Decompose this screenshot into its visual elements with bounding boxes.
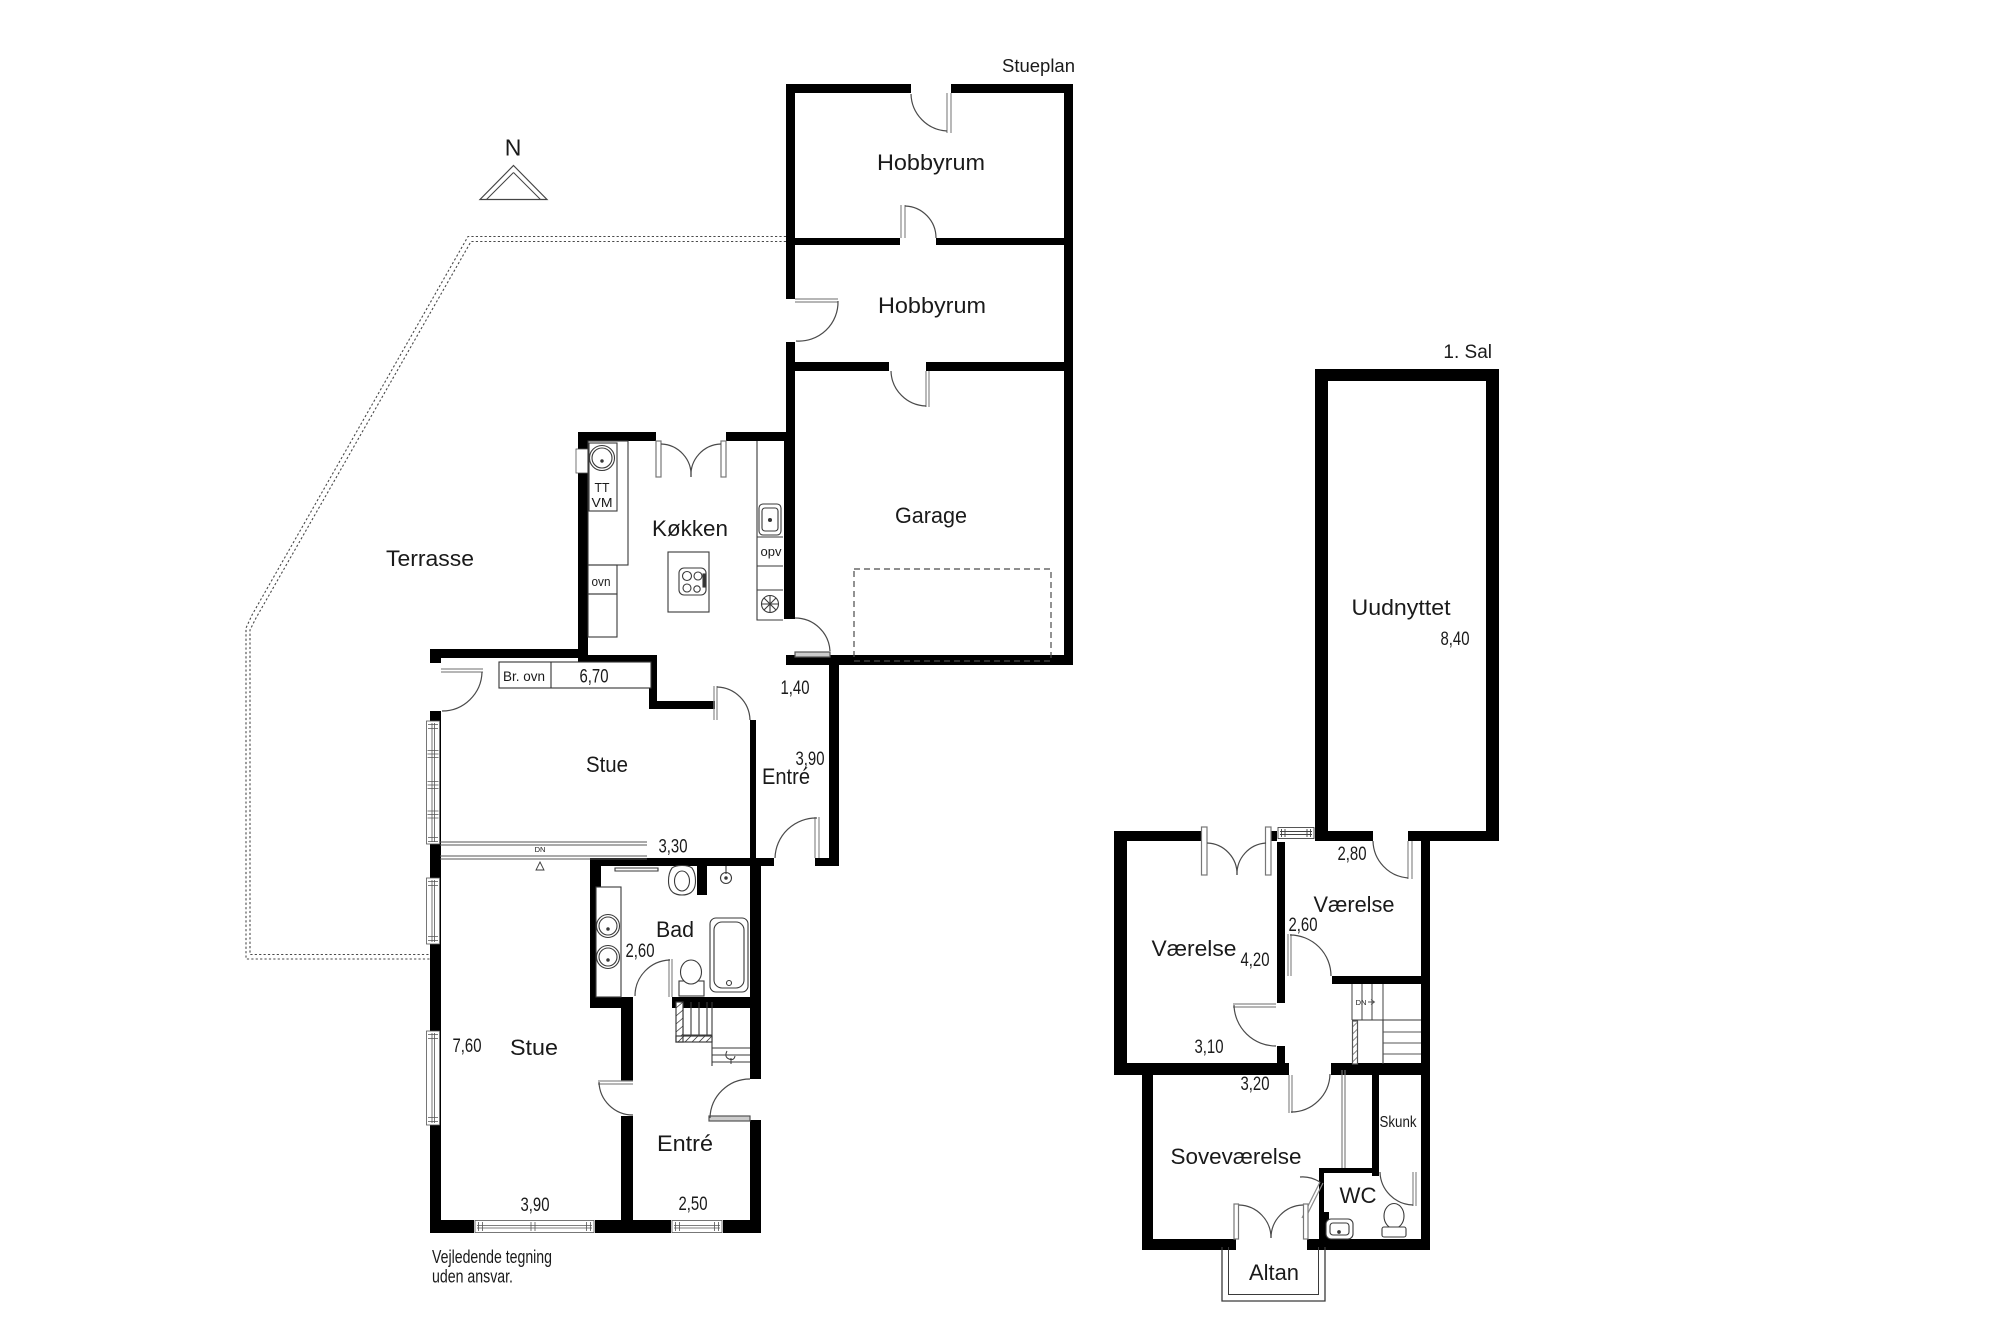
svg-text:Vejledende tegning: Vejledende tegning [432, 1246, 552, 1267]
svg-text:2,80: 2,80 [1338, 844, 1367, 865]
svg-text:2,60: 2,60 [626, 941, 655, 962]
svg-text:2,60: 2,60 [1289, 915, 1318, 936]
svg-text:1,40: 1,40 [781, 678, 810, 699]
svg-text:4,20: 4,20 [1241, 950, 1270, 971]
svg-text:3,90: 3,90 [796, 749, 825, 770]
svg-text:N: N [505, 135, 522, 161]
svg-text:Terrasse: Terrasse [386, 546, 474, 571]
svg-text:uden ansvar.: uden ansvar. [432, 1266, 513, 1287]
svg-text:Altan: Altan [1249, 1260, 1299, 1285]
svg-text:3,90: 3,90 [521, 1195, 550, 1216]
svg-text:opv: opv [761, 544, 782, 559]
svg-text:Stueplan: Stueplan [1002, 55, 1075, 76]
svg-text:DN: DN [535, 845, 546, 854]
svg-text:8,40: 8,40 [1441, 629, 1470, 650]
svg-text:Br. ovn: Br. ovn [503, 668, 545, 684]
svg-text:3,30: 3,30 [659, 837, 688, 858]
svg-text:Bad: Bad [656, 917, 694, 942]
svg-text:6,70: 6,70 [580, 667, 609, 688]
svg-text:Entré: Entré [657, 1131, 713, 1156]
svg-text:3,20: 3,20 [1241, 1074, 1270, 1095]
svg-text:Soveværelse: Soveværelse [1171, 1144, 1302, 1169]
svg-text:Stue: Stue [510, 1035, 558, 1060]
svg-text:VM: VM [592, 495, 613, 510]
svg-text:1. Sal: 1. Sal [1443, 342, 1492, 363]
svg-text:Værelse: Værelse [1314, 892, 1395, 917]
svg-text:7,60: 7,60 [453, 1036, 482, 1057]
svg-text:Køkken: Køkken [652, 516, 728, 541]
svg-text:DN: DN [1356, 998, 1367, 1007]
svg-text:Stue: Stue [586, 752, 628, 777]
svg-text:Hobbyrum: Hobbyrum [877, 150, 985, 175]
svg-text:Uudnyttet: Uudnyttet [1352, 595, 1452, 620]
svg-text:Hobbyrum: Hobbyrum [878, 293, 986, 318]
svg-text:2,50: 2,50 [679, 1194, 708, 1215]
svg-text:WC: WC [1340, 1183, 1377, 1208]
svg-text:Garage: Garage [895, 503, 967, 528]
svg-text:TT: TT [595, 480, 610, 495]
svg-text:Værelse: Værelse [1152, 936, 1237, 961]
svg-text:3,10: 3,10 [1195, 1037, 1224, 1058]
svg-text:ovn: ovn [592, 574, 611, 589]
svg-text:Skunk: Skunk [1380, 1114, 1418, 1131]
